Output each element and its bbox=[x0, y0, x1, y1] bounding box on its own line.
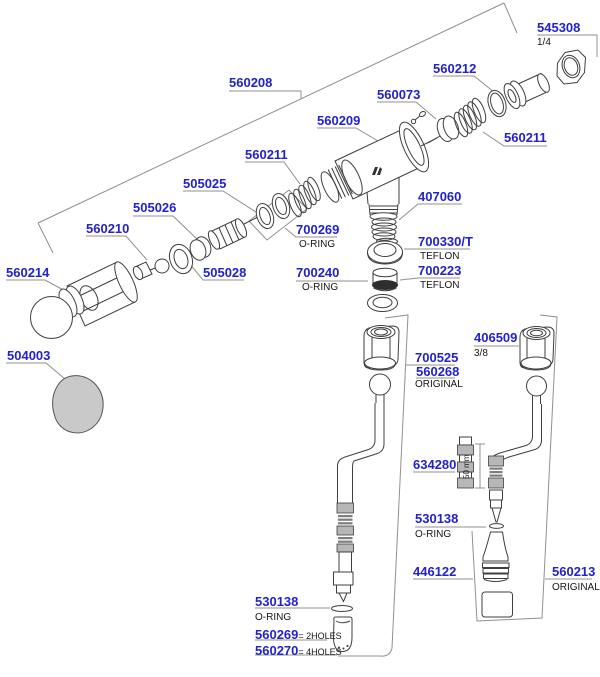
part-gasket-stack-700240-700223 bbox=[373, 268, 398, 290]
part-spring-560211-left bbox=[286, 176, 323, 219]
part-fitting bbox=[501, 72, 552, 111]
part-label-700240[interactable]: 700240 bbox=[296, 266, 339, 279]
part-label-446122[interactable]: 446122 bbox=[413, 565, 456, 578]
part-label-700330T[interactable]: 700330/T bbox=[418, 235, 473, 248]
part-label-row-560270: 560270= 4HOLES bbox=[255, 642, 342, 660]
part-tip-oring-530138-right bbox=[490, 524, 504, 529]
kit-outlines bbox=[249, 190, 557, 656]
type-note-700240: O-RING bbox=[302, 282, 338, 293]
part-knob-504003 bbox=[53, 376, 104, 433]
part-label-560269[interactable]: 560269 bbox=[255, 627, 298, 642]
parts-diagram-canvas: 560208 545308 1/4 560212 560073 560209 5… bbox=[0, 0, 600, 677]
type-note-560268: ORIGINAL bbox=[415, 379, 463, 390]
part-label-560210[interactable]: 560210 bbox=[86, 222, 129, 235]
type-note-530138-right: O-RING bbox=[415, 529, 451, 540]
type-note-700330T: TEFLON bbox=[420, 251, 459, 262]
part-label-530138-right[interactable]: 530138 bbox=[415, 512, 458, 525]
part-label-634280[interactable]: 634280 bbox=[413, 458, 456, 471]
type-note-560213: ORIGINAL bbox=[552, 582, 600, 593]
part-label-560208[interactable]: 560208 bbox=[229, 76, 272, 89]
part-hex-nut-545308 bbox=[557, 50, 586, 84]
size-note-406509: 3/8 bbox=[474, 348, 488, 359]
part-teflon-ring-700330 bbox=[368, 241, 403, 264]
part-label-560211-right[interactable]: 560211 bbox=[504, 131, 547, 144]
part-label-560214[interactable]: 560214 bbox=[6, 266, 49, 279]
part-label-504003[interactable]: 504003 bbox=[7, 349, 50, 362]
holes-note-560270: = 4HOLES bbox=[298, 647, 341, 657]
part-label-530138-left[interactable]: 530138 bbox=[255, 595, 298, 608]
part-label-560209[interactable]: 560209 bbox=[317, 114, 360, 127]
part-label-700223[interactable]: 700223 bbox=[418, 264, 461, 277]
type-note-530138-left: O-RING bbox=[255, 612, 291, 623]
part-label-560211-left[interactable]: 560211 bbox=[245, 148, 288, 161]
part-label-407060[interactable]: 407060 bbox=[418, 190, 461, 203]
part-label-406509[interactable]: 406509 bbox=[474, 331, 517, 344]
part-valve-body-560209 bbox=[318, 118, 437, 220]
part-label-700525[interactable]: 700525 bbox=[415, 351, 458, 364]
part-label-505026[interactable]: 505026 bbox=[133, 201, 176, 214]
dimension-label-50mm: 50 mm bbox=[462, 455, 471, 479]
size-note-545308: 1/4 bbox=[537, 37, 551, 48]
part-label-560212[interactable]: 560212 bbox=[433, 62, 476, 75]
type-note-700269: O-RING bbox=[299, 239, 335, 250]
part-gland bbox=[206, 217, 257, 251]
part-label-560268[interactable]: 560268 bbox=[416, 365, 459, 378]
part-label-505028[interactable]: 505028 bbox=[203, 266, 246, 279]
part-label-505025[interactable]: 505025 bbox=[183, 177, 226, 190]
part-stem-560210 bbox=[131, 259, 169, 281]
part-label-560213[interactable]: 560213 bbox=[552, 565, 595, 578]
part-nozzle-446122 bbox=[482, 532, 513, 617]
type-note-700223: TEFLON bbox=[420, 280, 459, 291]
part-label-700269[interactable]: 700269 bbox=[296, 223, 339, 236]
dimension-line-50mm bbox=[475, 444, 485, 488]
part-tip-oring-530138-left bbox=[332, 606, 353, 612]
part-oring-below-stack bbox=[368, 295, 398, 312]
part-right-wand bbox=[489, 327, 555, 523]
holes-note-560269: = 2HOLES bbox=[298, 631, 341, 641]
part-label-560270[interactable]: 560270 bbox=[255, 643, 298, 658]
part-label-560073[interactable]: 560073 bbox=[377, 88, 420, 101]
part-label-545308[interactable]: 545308 bbox=[537, 21, 580, 34]
part-left-wand bbox=[334, 326, 400, 602]
